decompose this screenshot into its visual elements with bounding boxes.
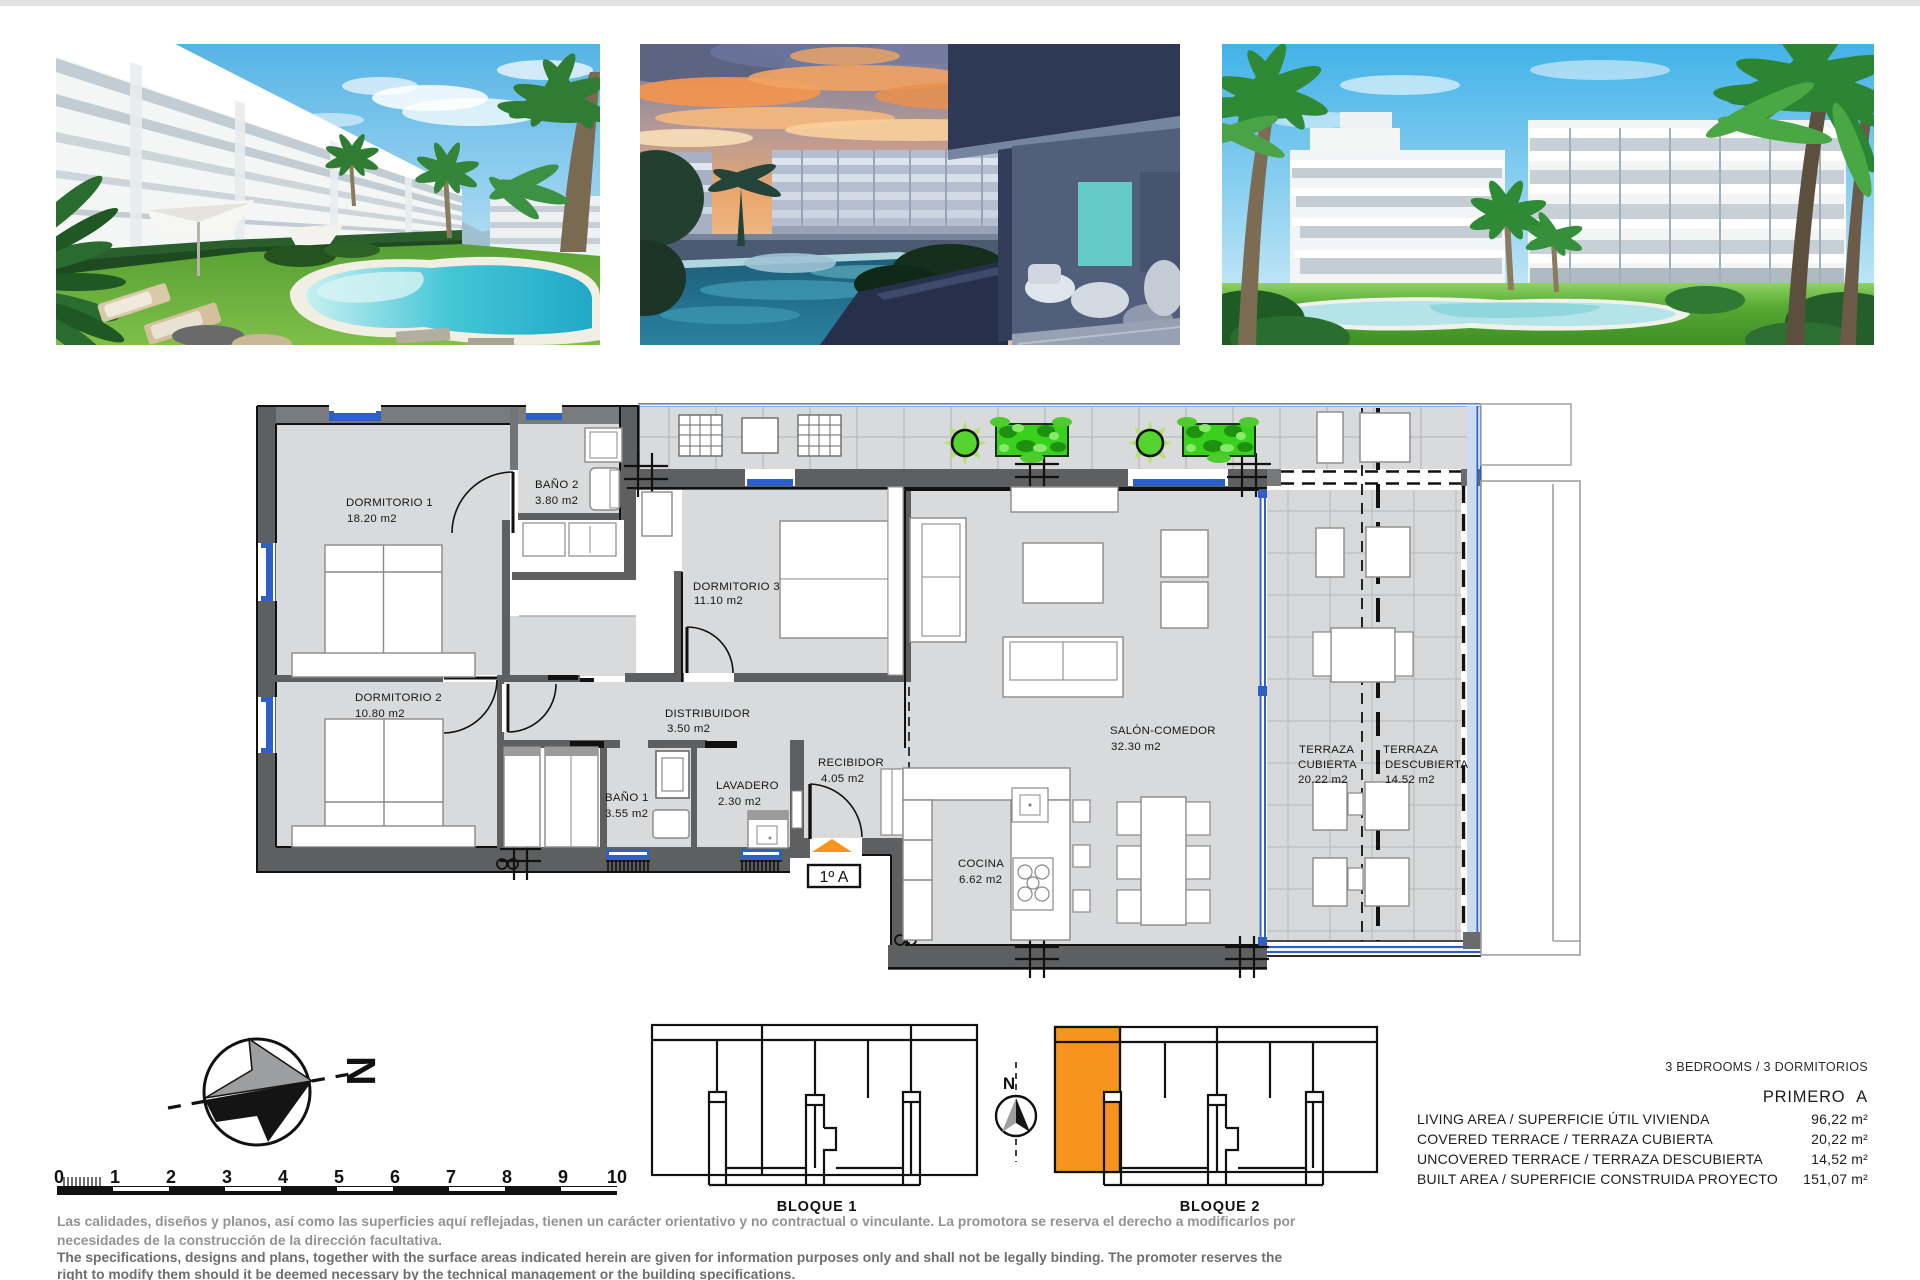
svg-text:1: 1	[110, 1167, 120, 1187]
svg-text:DESCUBIERTA: DESCUBIERTA	[1385, 759, 1468, 771]
svg-text:10: 10	[607, 1167, 627, 1187]
svg-text:N: N	[1003, 1074, 1015, 1093]
svg-text:SALÓN-COMEDOR: SALÓN-COMEDOR	[1110, 724, 1216, 737]
svg-text:The specifications, designs an: The specifications, designs and plans, t…	[57, 1250, 1282, 1265]
svg-text:14.52 m2: 14.52 m2	[1385, 774, 1435, 786]
svg-text:32.30 m2: 32.30 m2	[1111, 741, 1161, 753]
svg-text:1º A: 1º A	[820, 869, 849, 886]
svg-text:2: 2	[166, 1167, 176, 1187]
svg-text:8: 8	[502, 1167, 512, 1187]
svg-text:COVERED TERRACE / TERRAZA CUBI: COVERED TERRACE / TERRAZA CUBIERTA	[1417, 1131, 1713, 1147]
svg-text:3.80 m2: 3.80 m2	[535, 495, 578, 507]
svg-text:DISTRIBUIDOR: DISTRIBUIDOR	[665, 708, 750, 720]
svg-text:BAÑO 2: BAÑO 2	[535, 478, 579, 491]
svg-text:DORMITORIO 3: DORMITORIO 3	[693, 581, 780, 593]
svg-text:PRIMERO A: PRIMERO A	[1763, 1088, 1868, 1106]
svg-text:COCINA: COCINA	[958, 858, 1004, 870]
svg-text:0: 0	[54, 1167, 64, 1187]
svg-text:DORMITORIO 2: DORMITORIO 2	[355, 692, 442, 704]
svg-text:DORMITORIO 1: DORMITORIO 1	[346, 497, 433, 509]
svg-text:20.22 m2: 20.22 m2	[1298, 774, 1348, 786]
svg-text:TERRAZA: TERRAZA	[1299, 744, 1354, 756]
svg-text:3 BEDROOMS / 3 DORMITORIOS: 3 BEDROOMS / 3 DORMITORIOS	[1665, 1060, 1868, 1074]
svg-text:4.05 m2: 4.05 m2	[821, 773, 864, 785]
svg-text:96,22 m²: 96,22 m²	[1811, 1111, 1868, 1127]
svg-text:11.10 m2: 11.10 m2	[694, 595, 743, 607]
svg-text:TERRAZA: TERRAZA	[1383, 744, 1438, 756]
svg-text:3: 3	[222, 1167, 232, 1187]
svg-text:BLOQUE 1: BLOQUE 1	[777, 1199, 858, 1215]
svg-text:UNCOVERED TERRACE / TERRAZA DE: UNCOVERED TERRACE / TERRAZA DESCUBIERTA	[1417, 1151, 1763, 1167]
svg-text:6: 6	[390, 1167, 400, 1187]
svg-text:14,52 m²: 14,52 m²	[1811, 1151, 1868, 1167]
svg-text:Las calidades, diseños y plano: Las calidades, diseños y planos, así com…	[57, 1214, 1296, 1229]
svg-text:LIVING AREA / SUPERFICIE ÚTIL: LIVING AREA / SUPERFICIE ÚTIL VIVIENDA	[1417, 1111, 1710, 1127]
svg-text:20,22 m²: 20,22 m²	[1811, 1131, 1868, 1147]
svg-text:BUILT AREA / SUPERFICIE CONSTR: BUILT AREA / SUPERFICIE CONSTRUIDA PROYE…	[1417, 1171, 1778, 1187]
svg-text:18.20 m2: 18.20 m2	[347, 513, 397, 525]
svg-text:BAÑO 1: BAÑO 1	[605, 791, 649, 804]
svg-text:3.55 m2: 3.55 m2	[605, 808, 648, 820]
svg-text:2.30 m2: 2.30 m2	[718, 796, 761, 808]
svg-text:7: 7	[446, 1167, 456, 1187]
svg-text:10.80 m2: 10.80 m2	[355, 708, 405, 720]
svg-text:6.62 m2: 6.62 m2	[959, 874, 1002, 886]
svg-text:151,07 m²: 151,07 m²	[1803, 1171, 1868, 1187]
svg-text:3.50 m2: 3.50 m2	[667, 723, 710, 735]
svg-text:9: 9	[558, 1167, 568, 1187]
svg-text:CUBIERTA: CUBIERTA	[1298, 759, 1357, 771]
svg-text:N: N	[338, 1056, 384, 1086]
svg-text:BLOQUE 2: BLOQUE 2	[1180, 1199, 1261, 1215]
svg-text:RECIBIDOR: RECIBIDOR	[818, 757, 884, 769]
svg-text:right to modify them should it: right to modify them should it be deemed…	[57, 1267, 795, 1280]
svg-text:4: 4	[278, 1167, 288, 1187]
svg-text:necesidades de la construcción: necesidades de la construcción de la dir…	[57, 1233, 442, 1248]
svg-text:LAVADERO: LAVADERO	[716, 780, 779, 792]
svg-text:5: 5	[334, 1167, 344, 1187]
